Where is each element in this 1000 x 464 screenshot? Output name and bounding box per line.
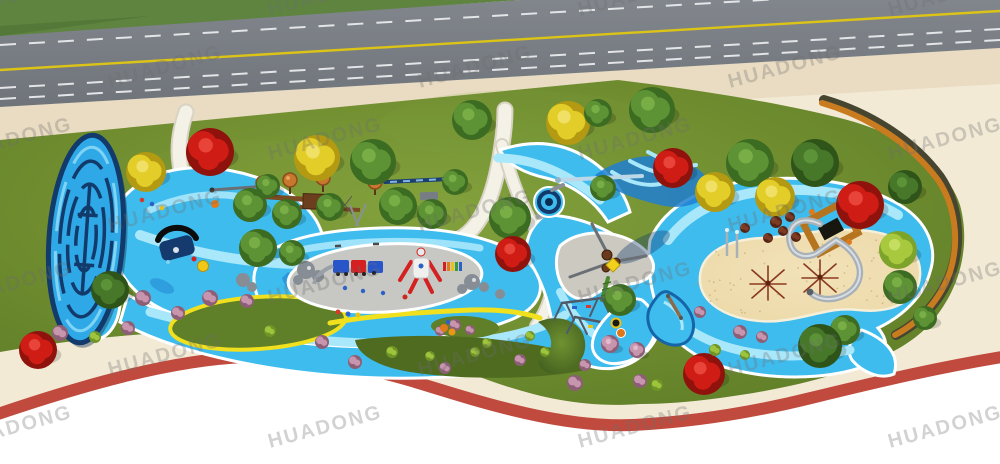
bush <box>386 346 398 358</box>
bush <box>514 354 526 366</box>
sand-speckle <box>817 269 819 271</box>
bush <box>633 374 647 388</box>
marker-dot <box>361 289 365 293</box>
marker-dot <box>346 312 351 317</box>
aerial-park-scene: HUADONGHUADONGHUADONGHUADONGHUADONGHUADO… <box>0 0 1000 464</box>
sand-speckle <box>744 312 746 314</box>
sand-speckle <box>715 251 717 253</box>
sand-speckle <box>836 288 838 290</box>
sand-speckle <box>744 252 746 254</box>
sand-speckle <box>740 278 742 280</box>
bush <box>791 232 801 242</box>
watermark-text: HUADONG <box>266 401 385 453</box>
bush <box>651 379 663 391</box>
sand-speckle <box>709 280 711 282</box>
park-plan-rendering: HUADONGHUADONGHUADONGHUADONGHUADONGHUADO… <box>0 0 1000 464</box>
sand-speckle <box>866 299 868 301</box>
sand-speckle <box>822 243 824 245</box>
bush <box>171 306 185 320</box>
sand-speckle <box>869 278 871 280</box>
bush <box>567 375 583 391</box>
sand-speckle <box>829 255 831 257</box>
marker-dot <box>140 198 145 203</box>
sand-speckle <box>871 290 873 292</box>
sand-speckle <box>847 265 849 267</box>
marker-dot <box>446 320 450 324</box>
sand-speckle <box>762 250 764 252</box>
sand-speckle <box>875 239 877 241</box>
sand-speckle <box>764 263 766 265</box>
bench <box>373 243 379 246</box>
watermark-text: HUADONG <box>886 401 1000 453</box>
marker-dot <box>403 295 408 300</box>
sand-speckle <box>741 312 743 314</box>
sand-speckle <box>810 261 812 263</box>
bench <box>335 245 341 248</box>
bush <box>52 325 68 341</box>
bush <box>709 344 721 356</box>
sand-speckle <box>844 272 846 274</box>
sand-speckle <box>709 294 711 296</box>
sand-speckle <box>877 252 879 254</box>
sand-speckle <box>716 299 718 301</box>
bush <box>465 325 475 335</box>
sand-speckle <box>797 267 799 269</box>
bush <box>540 347 550 357</box>
sand-speckle <box>718 254 720 256</box>
sand-speckle <box>876 295 878 297</box>
sand-speckle <box>730 289 732 291</box>
bush <box>315 335 329 349</box>
bush <box>121 321 135 335</box>
sand-speckle <box>873 257 875 259</box>
bush <box>240 294 254 308</box>
sand-speckle <box>740 309 742 311</box>
marker-dot <box>449 329 456 336</box>
sand-speckle <box>714 290 716 292</box>
bush <box>579 359 591 371</box>
sand-speckle <box>753 288 755 290</box>
sand-speckle <box>733 284 735 286</box>
bush <box>756 331 768 343</box>
bush <box>694 306 706 318</box>
sand-speckle <box>882 302 884 304</box>
bush <box>778 226 788 236</box>
sand-speckle <box>729 282 731 284</box>
sand-speckle <box>719 279 721 281</box>
bush <box>89 331 101 343</box>
bush <box>264 325 276 337</box>
sand-speckle <box>871 260 873 262</box>
sand-speckle <box>806 280 808 282</box>
marker-dot <box>381 291 385 295</box>
sand-speckle <box>759 311 761 313</box>
bush <box>348 355 362 369</box>
bush <box>733 325 747 339</box>
marker-dot <box>356 313 361 318</box>
sand-speckle <box>710 300 712 302</box>
sand-speckle <box>713 281 715 283</box>
bush <box>135 290 151 306</box>
bush <box>202 290 218 306</box>
sand-speckle <box>697 284 699 286</box>
rainbow-bars <box>443 262 462 271</box>
sand-speckle <box>883 295 885 297</box>
marker-dot <box>440 324 448 332</box>
marker-dot <box>336 310 341 315</box>
bush <box>763 233 773 243</box>
sand-speckle <box>843 285 845 287</box>
